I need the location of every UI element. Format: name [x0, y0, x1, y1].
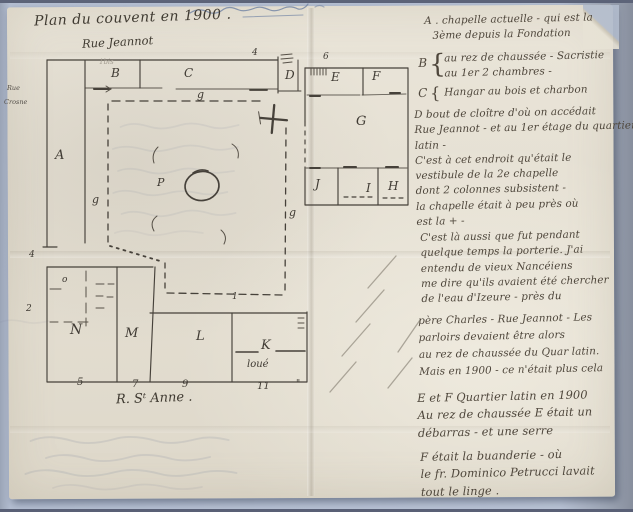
room-label-h: H [388, 179, 398, 193]
gallery-label-top: g [197, 88, 204, 101]
street-label-left-line1: Rue [7, 84, 20, 92]
note-letter-c: C [418, 86, 428, 100]
gallery-label-right: g [289, 206, 296, 219]
annotation-loue: loué [247, 359, 269, 370]
pencil-marks [330, 256, 420, 392]
cloister-cross [257, 104, 288, 134]
note-line: tout le linge . [421, 480, 596, 501]
note-paragraph-porterie: C'est là aussi que fut pendant quelque t… [420, 227, 609, 307]
cloister-galleries [108, 101, 286, 295]
note-letter-b: B [418, 56, 427, 70]
upper-block-strokes [43, 54, 301, 247]
note-paragraph-parloirs: père Charles - Rue Jeannot - Les parloir… [418, 309, 603, 381]
number-gallery-1: 1 [232, 292, 238, 302]
number-st-anne-11: 11 [257, 381, 270, 392]
room-label-i: I [366, 181, 371, 195]
street-label-rue-st-anne: R. Sᵗ Anne . [116, 390, 193, 408]
note-paragraph-ef: E et F Quartier latin en 1900 Au rez de … [417, 386, 593, 442]
number-rue-jeannot-4: 4 [252, 48, 258, 58]
room-label-b: B [111, 66, 120, 80]
note-paragraph-a: A . chapelle actuelle - qui est la 3ème … [424, 10, 593, 44]
note-paragraph-d: D bout de cloître d'où on accédait Rue J… [414, 103, 633, 230]
note-brace-b: { [429, 49, 446, 79]
number-one-bis: 1bis [99, 58, 114, 66]
room-label-a: A [55, 148, 64, 163]
room-label-e: E [331, 70, 340, 84]
room-label-j: J [315, 177, 320, 191]
room-label-c: C [184, 66, 193, 80]
room-label-d: D [285, 68, 295, 82]
photograph-of-document: Plan du couvent en 1900 . Rue Jeannot Ru… [0, 0, 633, 512]
room-label-p: P [157, 176, 164, 189]
gallery-label-left: g [92, 193, 99, 206]
number-left-top: 4 [29, 250, 35, 260]
room-label-o: o [62, 275, 67, 285]
room-label-n: N [70, 322, 82, 338]
room-label-g: G [356, 114, 366, 129]
street-label-left-line2: Crosne [4, 98, 27, 106]
room-label-m: M [125, 326, 138, 341]
note-line: Au rez de chaussée E était un [417, 404, 592, 425]
number-st-anne-5: 5 [77, 377, 83, 388]
room-label-k: K [261, 338, 271, 353]
note-paragraph-b: B { au rez de chaussée - Sacristie au 1e… [418, 48, 605, 82]
number-rue-jeannot-6: 6 [323, 52, 329, 62]
note-line: le fr. Dominico Petrucci lavait [420, 463, 595, 484]
number-left-bottom: 2 [26, 304, 32, 314]
note-line: débarras - et une serre [418, 421, 593, 442]
note-line: Hangar au bois et charbon [444, 82, 588, 100]
number-st-anne-7: 7 [132, 379, 138, 390]
number-ditto-mark: " [296, 379, 300, 389]
note-paragraph-f: F était la buanderie - où le fr. Dominic… [420, 445, 595, 501]
note-brace-c: { [430, 84, 441, 103]
ghost-bleedthrough [0, 124, 249, 490]
room-label-f: F [372, 69, 380, 83]
number-st-anne-9: 9 [182, 379, 188, 390]
room-label-l: L [196, 329, 205, 344]
